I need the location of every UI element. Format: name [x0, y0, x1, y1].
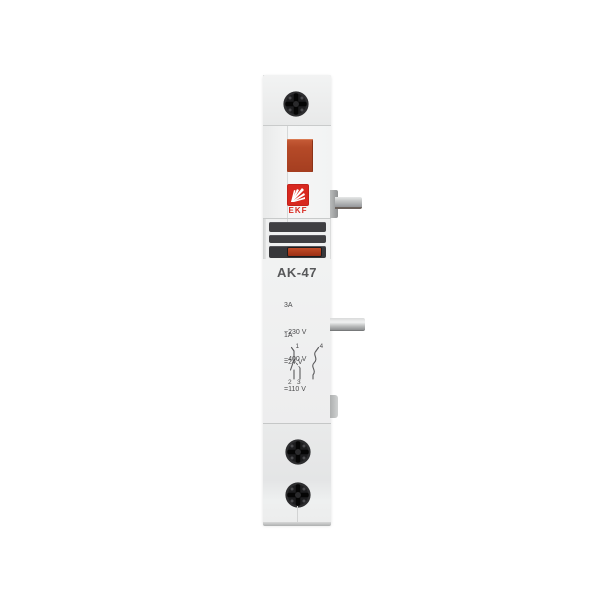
indicator-stripe — [269, 246, 326, 258]
marking-area: AK-47 3A ~230 V ~400 V 1A =24 V =110 V — [263, 259, 331, 423]
housing-seam — [297, 506, 298, 522]
brand-name: EKF — [285, 206, 311, 215]
auxiliary-contact-module: EKF AK-47 3A ~230 V ~400 V 1A =24 V =110… — [263, 75, 331, 525]
product-photo: EKF AK-47 3A ~230 V ~400 V 1A =24 V =110… — [0, 0, 600, 600]
bottom-terminal-block — [263, 423, 331, 526]
red-toggle-button — [287, 139, 313, 172]
dc-current: 1A — [284, 331, 306, 340]
terminal-2-label: 2 — [288, 379, 292, 385]
terminal-1-label: 1 — [296, 343, 300, 350]
actuator-pin — [335, 197, 362, 209]
terminal-3-label: 3 — [297, 379, 301, 385]
decor-stripe — [269, 235, 326, 243]
body-bottom-edge — [263, 522, 331, 526]
state-indicator-window — [288, 248, 321, 256]
wiring-diagram: 1 2 3 4 — [283, 341, 325, 385]
ac-current: 3A — [284, 301, 306, 310]
screw-icon — [284, 438, 312, 466]
terminal-4-label: 4 — [320, 343, 324, 350]
screw-icon — [282, 90, 310, 118]
housing-seam — [263, 218, 331, 219]
screw-icon — [284, 481, 312, 509]
decor-stripe — [269, 222, 326, 232]
ekf-logo-icon — [288, 185, 308, 205]
side-clip-tab — [330, 395, 338, 418]
actuator-rod — [330, 318, 365, 331]
dc-voltage-2: =110 V — [284, 385, 306, 394]
top-terminal-block — [263, 75, 331, 126]
model-label: AK-47 — [263, 265, 331, 280]
